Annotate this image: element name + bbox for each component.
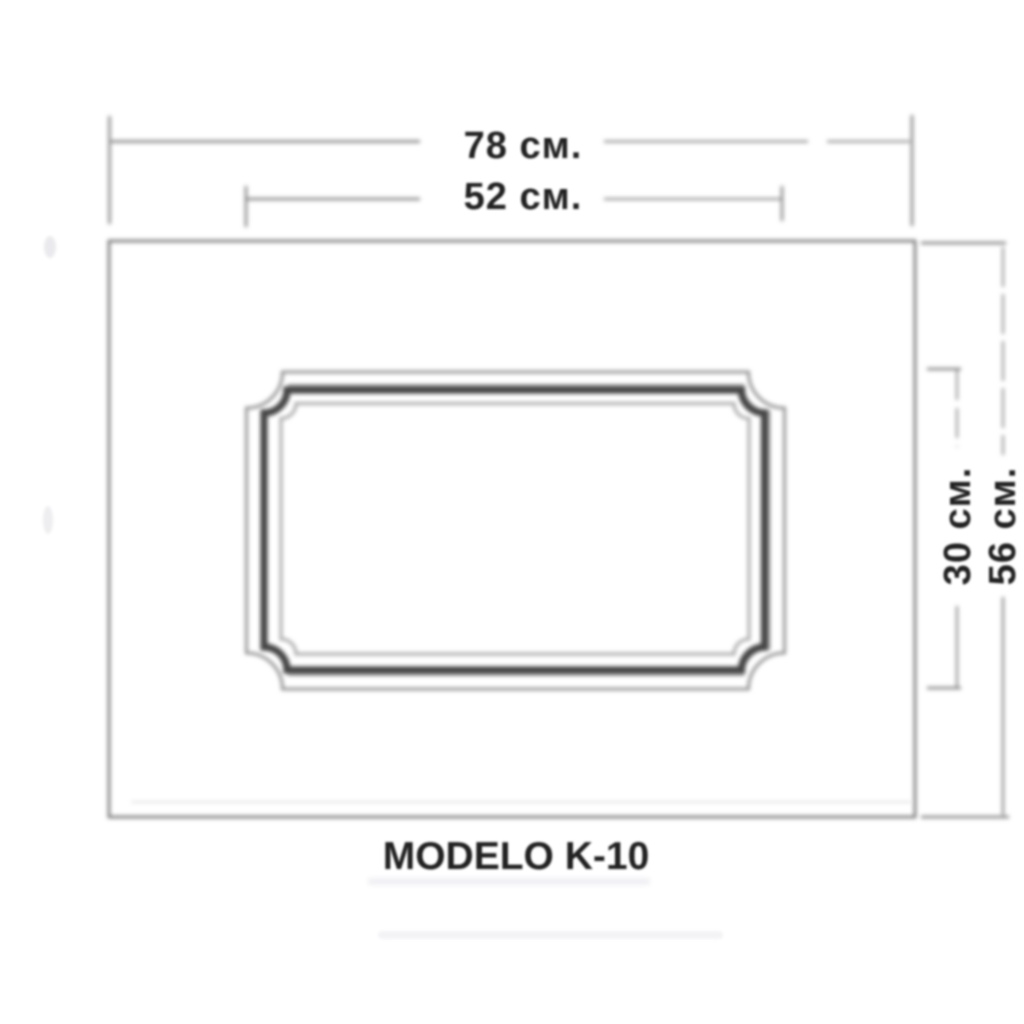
svg-text:MODELO K-10: MODELO K-10 [383,835,650,878]
svg-text:52 см.: 52 см. [464,176,583,218]
svg-text:30 см.: 30 см. [937,467,979,586]
svg-text:78 см.: 78 см. [464,125,583,167]
svg-text:56 см.: 56 см. [982,467,1024,586]
